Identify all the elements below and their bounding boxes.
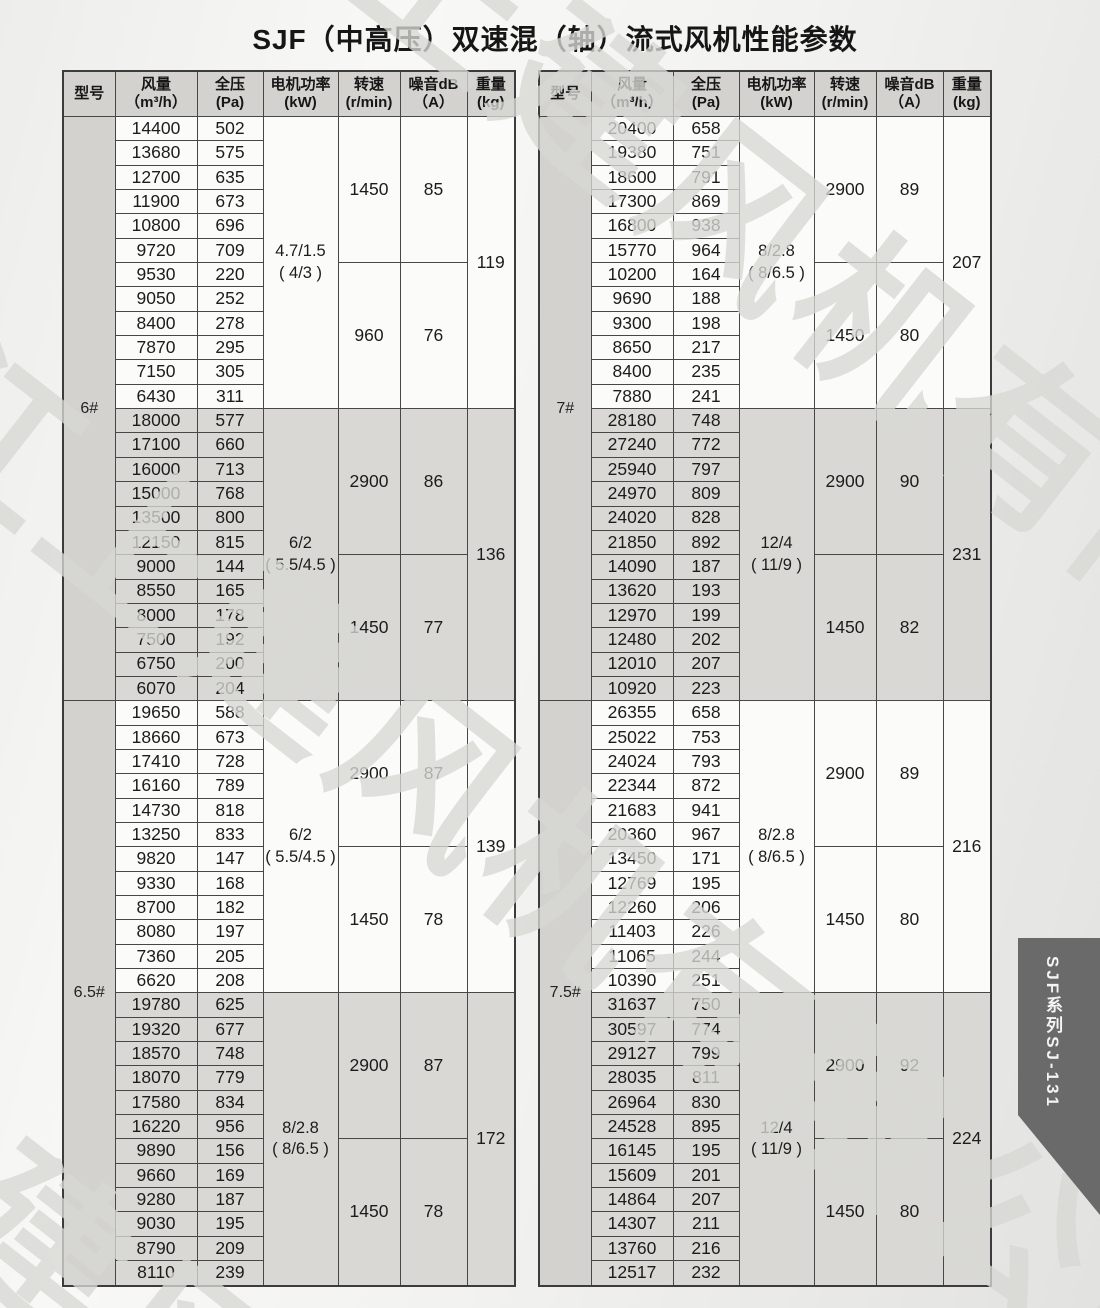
speed-cell: 2900 [814, 117, 876, 263]
flow-cell: 8650 [591, 336, 673, 360]
pressure-cell: 295 [197, 336, 263, 360]
pressure-cell: 169 [197, 1163, 263, 1187]
weight-cell: 172 [467, 993, 515, 1286]
flow-cell: 9050 [115, 287, 197, 311]
pressure-cell: 220 [197, 263, 263, 287]
pressure-cell: 188 [673, 287, 739, 311]
pressure-cell: 748 [197, 1042, 263, 1066]
flow-cell: 31637 [591, 993, 673, 1017]
pressure-cell: 207 [673, 1188, 739, 1212]
flow-cell: 19780 [115, 993, 197, 1017]
pressure-cell: 800 [197, 506, 263, 530]
flow-cell: 9660 [115, 1163, 197, 1187]
pressure-cell: 207 [673, 652, 739, 676]
pressure-cell: 198 [673, 311, 739, 335]
col-header-weight: 重量(kg) [943, 71, 991, 117]
flow-cell: 10920 [591, 676, 673, 700]
noise-cell: 89 [876, 117, 943, 263]
flow-cell: 30597 [591, 1017, 673, 1041]
col-header-label: 噪音dB [401, 76, 467, 94]
pressure-cell: 223 [673, 676, 739, 700]
pressure-cell: 193 [673, 579, 739, 603]
col-header-label: 噪音dB [877, 76, 943, 94]
flow-cell: 11900 [115, 190, 197, 214]
flow-cell: 9820 [115, 847, 197, 871]
power-cell: 6/2( 5.5/4.5 ) [263, 409, 338, 701]
pressure-cell: 577 [197, 409, 263, 433]
pressure-cell: 305 [197, 360, 263, 384]
flow-cell: 13250 [115, 822, 197, 846]
weight-cell: 224 [943, 993, 991, 1286]
pressure-cell: 278 [197, 311, 263, 335]
speed-cell: 1450 [338, 1139, 400, 1286]
col-header-unit: (r/min) [815, 94, 876, 112]
pressure-cell: 774 [673, 1017, 739, 1041]
flow-cell: 6070 [115, 676, 197, 700]
flow-cell: 9690 [591, 287, 673, 311]
flow-cell: 13680 [115, 141, 197, 165]
flow-cell: 13450 [591, 847, 673, 871]
power-cell: 12/4( 11/9 ) [739, 993, 814, 1286]
col-header-power: 电机功率(kW) [739, 71, 814, 117]
speed-cell: 2900 [338, 701, 400, 847]
power-cell: 6/2( 5.5/4.5 ) [263, 701, 338, 993]
pressure-cell: 156 [197, 1139, 263, 1163]
pressure-cell: 216 [673, 1236, 739, 1260]
flow-cell: 18600 [591, 165, 673, 189]
flow-cell: 24528 [591, 1115, 673, 1139]
flow-cell: 14730 [115, 798, 197, 822]
pressure-cell: 182 [197, 896, 263, 920]
pressure-cell: 833 [197, 822, 263, 846]
flow-cell: 9300 [591, 311, 673, 335]
pressure-cell: 809 [673, 482, 739, 506]
flow-cell: 8550 [115, 579, 197, 603]
noise-cell: 80 [876, 847, 943, 993]
power-value: 12/4 [740, 533, 814, 554]
pressure-cell: 588 [197, 701, 263, 725]
pressure-cell: 239 [197, 1261, 263, 1286]
pressure-cell: 144 [197, 555, 263, 579]
flow-cell: 26964 [591, 1090, 673, 1114]
pressure-cell: 799 [673, 1042, 739, 1066]
flow-cell: 11403 [591, 920, 673, 944]
noise-cell: 80 [876, 1139, 943, 1286]
noise-cell: 87 [400, 701, 467, 847]
flow-cell: 9720 [115, 238, 197, 262]
pressure-cell: 658 [673, 701, 739, 725]
flow-cell: 15000 [115, 482, 197, 506]
power-value: 8/2.8 [264, 1118, 338, 1139]
flow-cell: 25940 [591, 457, 673, 481]
flow-cell: 17410 [115, 749, 197, 773]
pressure-cell: 165 [197, 579, 263, 603]
pressure-cell: 673 [197, 190, 263, 214]
pressure-cell: 772 [673, 433, 739, 457]
col-header-unit: (kW) [740, 94, 814, 112]
col-header-flow: 风量（m³/h） [115, 71, 197, 117]
col-header-label: 重量 [468, 76, 515, 94]
flow-cell: 29127 [591, 1042, 673, 1066]
pressure-cell: 677 [197, 1017, 263, 1041]
flow-cell: 28035 [591, 1066, 673, 1090]
pressure-cell: 660 [197, 433, 263, 457]
pressure-cell: 751 [673, 141, 739, 165]
pressure-cell: 197 [197, 920, 263, 944]
pressure-cell: 226 [673, 920, 739, 944]
power-paren: ( 11/9 ) [740, 1139, 814, 1160]
pressure-cell: 232 [673, 1261, 739, 1286]
flow-cell: 17580 [115, 1090, 197, 1114]
catalog-page: SJF（中高压）双速混（轴）流式风机性能参数 型号风量（m³/h）全压(Pa)电… [0, 0, 1100, 1308]
pressure-cell: 311 [197, 384, 263, 408]
pressure-cell: 938 [673, 214, 739, 238]
pressure-cell: 195 [197, 1212, 263, 1236]
flow-cell: 13500 [115, 506, 197, 530]
flow-cell: 15770 [591, 238, 673, 262]
power-paren: ( 5.5/4.5 ) [264, 847, 338, 868]
weight-cell: 119 [467, 117, 515, 409]
speed-cell: 2900 [338, 993, 400, 1139]
noise-cell: 82 [876, 555, 943, 701]
noise-cell: 76 [400, 263, 467, 409]
col-header-label: 风量 [592, 76, 673, 94]
col-header-pressure: 全压(Pa) [197, 71, 263, 117]
model-cell: 7# [539, 117, 591, 701]
weight-cell: 231 [943, 409, 991, 701]
col-header-unit: (r/min) [339, 94, 400, 112]
pressure-cell: 202 [673, 628, 739, 652]
flow-cell: 7880 [591, 384, 673, 408]
flow-cell: 9530 [115, 263, 197, 287]
speed-cell: 1450 [338, 847, 400, 993]
pressure-cell: 211 [673, 1212, 739, 1236]
flow-cell: 19380 [591, 141, 673, 165]
flow-cell: 6750 [115, 652, 197, 676]
pressure-cell: 750 [673, 993, 739, 1017]
flow-cell: 8700 [115, 896, 197, 920]
speed-cell: 2900 [814, 409, 876, 555]
flow-cell: 25022 [591, 725, 673, 749]
pressure-cell: 192 [197, 628, 263, 652]
power-cell: 8/2.8( 8/6.5 ) [739, 701, 814, 993]
pressure-cell: 241 [673, 384, 739, 408]
col-header-power: 电机功率(kW) [263, 71, 338, 117]
flow-cell: 8400 [115, 311, 197, 335]
flow-cell: 16160 [115, 774, 197, 798]
pressure-cell: 195 [673, 1139, 739, 1163]
pressure-cell: 815 [197, 530, 263, 554]
col-header-unit: (Pa) [198, 94, 263, 112]
model-cell: 6# [63, 117, 115, 701]
flow-cell: 19650 [115, 701, 197, 725]
power-cell: 12/4( 11/9 ) [739, 409, 814, 701]
col-header-unit: （A） [877, 94, 943, 112]
pressure-cell: 195 [673, 871, 739, 895]
flow-cell: 16000 [115, 457, 197, 481]
pressure-cell: 830 [673, 1090, 739, 1114]
pressure-cell: 178 [197, 603, 263, 627]
power-paren: ( 5.5/4.5 ) [264, 555, 338, 576]
flow-cell: 12517 [591, 1261, 673, 1286]
flow-cell: 14307 [591, 1212, 673, 1236]
power-value: 8/2.8 [740, 241, 814, 262]
col-header-label: 型号 [64, 85, 115, 103]
noise-cell: 78 [400, 1139, 467, 1286]
flow-cell: 20360 [591, 822, 673, 846]
pressure-cell: 797 [673, 457, 739, 481]
flow-cell: 12480 [591, 628, 673, 652]
pressure-cell: 252 [197, 287, 263, 311]
pressure-cell: 967 [673, 822, 739, 846]
pressure-cell: 201 [673, 1163, 739, 1187]
power-paren: ( 11/9 ) [740, 555, 814, 576]
weight-cell: 136 [467, 409, 515, 701]
pressure-cell: 709 [197, 238, 263, 262]
pressure-cell: 941 [673, 798, 739, 822]
pressure-cell: 204 [197, 676, 263, 700]
noise-cell: 77 [400, 555, 467, 701]
speed-cell: 2900 [338, 409, 400, 555]
flow-cell: 6620 [115, 969, 197, 993]
speed-cell: 1450 [814, 847, 876, 993]
speed-cell: 1450 [338, 117, 400, 263]
power-cell: 4.7/1.5( 4/3 ) [263, 117, 338, 409]
col-header-speed: 转速(r/min) [338, 71, 400, 117]
flow-cell: 14400 [115, 117, 197, 141]
weight-cell: 139 [467, 701, 515, 993]
flow-cell: 11065 [591, 944, 673, 968]
flow-cell: 18570 [115, 1042, 197, 1066]
col-header-model: 型号 [539, 71, 591, 117]
flow-cell: 10200 [591, 263, 673, 287]
speed-cell: 2900 [814, 701, 876, 847]
flow-cell: 8110 [115, 1261, 197, 1286]
flow-cell: 9030 [115, 1212, 197, 1236]
speed-cell: 2900 [814, 993, 876, 1139]
col-header-unit: （A） [401, 94, 467, 112]
pressure-cell: 748 [673, 409, 739, 433]
pressure-cell: 199 [673, 603, 739, 627]
flow-cell: 18000 [115, 409, 197, 433]
flow-cell: 24020 [591, 506, 673, 530]
pressure-cell: 206 [673, 896, 739, 920]
flow-cell: 10800 [115, 214, 197, 238]
flow-cell: 16220 [115, 1115, 197, 1139]
pressure-cell: 171 [673, 847, 739, 871]
flow-cell: 22344 [591, 774, 673, 798]
col-header-model: 型号 [63, 71, 115, 117]
flow-cell: 7360 [115, 944, 197, 968]
flow-cell: 9280 [115, 1188, 197, 1212]
pressure-cell: 635 [197, 165, 263, 189]
flow-cell: 18070 [115, 1066, 197, 1090]
noise-cell: 78 [400, 847, 467, 993]
pressure-cell: 779 [197, 1066, 263, 1090]
pressure-cell: 793 [673, 749, 739, 773]
speed-cell: 1450 [338, 555, 400, 701]
flow-cell: 8400 [591, 360, 673, 384]
col-header-weight: 重量(kg) [467, 71, 515, 117]
power-value: 6/2 [264, 825, 338, 846]
flow-cell: 19320 [115, 1017, 197, 1041]
flow-cell: 12010 [591, 652, 673, 676]
flow-cell: 21850 [591, 530, 673, 554]
flow-cell: 9890 [115, 1139, 197, 1163]
flow-cell: 14090 [591, 555, 673, 579]
performance-table-left: 型号风量（m³/h）全压(Pa)电机功率(kW)转速(r/min)噪音dB（A）… [62, 70, 516, 1287]
flow-cell: 8790 [115, 1236, 197, 1260]
bookmark-label: SJF系列SJ-131 [1040, 956, 1065, 1109]
noise-cell: 86 [400, 409, 467, 555]
pressure-cell: 673 [197, 725, 263, 749]
flow-cell: 10390 [591, 969, 673, 993]
pressure-cell: 789 [197, 774, 263, 798]
power-paren: ( 8/6.5 ) [264, 1139, 338, 1160]
pressure-cell: 818 [197, 798, 263, 822]
noise-cell: 90 [876, 409, 943, 555]
series-bookmark-tab: SJF系列SJ-131 [1010, 930, 1100, 1260]
flow-cell: 12970 [591, 603, 673, 627]
pressure-cell: 164 [673, 263, 739, 287]
weight-cell: 216 [943, 701, 991, 993]
flow-cell: 15609 [591, 1163, 673, 1187]
flow-cell: 9000 [115, 555, 197, 579]
pressure-cell: 828 [673, 506, 739, 530]
flow-cell: 13620 [591, 579, 673, 603]
col-header-unit: (Pa) [674, 94, 739, 112]
pressure-cell: 658 [673, 117, 739, 141]
flow-cell: 21683 [591, 798, 673, 822]
pressure-cell: 895 [673, 1115, 739, 1139]
power-cell: 8/2.8( 8/6.5 ) [739, 117, 814, 409]
pressure-cell: 869 [673, 190, 739, 214]
flow-cell: 28180 [591, 409, 673, 433]
model-cell: 7.5# [539, 701, 591, 1286]
pressure-cell: 872 [673, 774, 739, 798]
col-header-label: 转速 [339, 76, 400, 94]
pressure-cell: 147 [197, 847, 263, 871]
flow-cell: 24024 [591, 749, 673, 773]
series-name: SJF系列 [1043, 956, 1062, 1036]
col-header-label: 全压 [198, 76, 263, 94]
col-header-label: 电机功率 [264, 76, 338, 94]
pressure-cell: 713 [197, 457, 263, 481]
pressure-cell: 575 [197, 141, 263, 165]
pressure-cell: 834 [197, 1090, 263, 1114]
series-code: SJ-131 [1043, 1036, 1062, 1109]
flow-cell: 7870 [115, 336, 197, 360]
noise-cell: 80 [876, 263, 943, 409]
col-header-label: 转速 [815, 76, 876, 94]
flow-cell: 9330 [115, 871, 197, 895]
flow-cell: 7500 [115, 628, 197, 652]
performance-table-right: 型号风量（m³/h）全压(Pa)电机功率(kW)转速(r/min)噪音dB（A）… [538, 70, 992, 1287]
pressure-cell: 209 [197, 1236, 263, 1260]
pressure-cell: 964 [673, 238, 739, 262]
pressure-cell: 251 [673, 969, 739, 993]
flow-cell: 6430 [115, 384, 197, 408]
flow-cell: 7150 [115, 360, 197, 384]
flow-cell: 12150 [115, 530, 197, 554]
col-header-noise: 噪音dB（A） [876, 71, 943, 117]
pressure-cell: 892 [673, 530, 739, 554]
col-header-noise: 噪音dB（A） [400, 71, 467, 117]
col-header-label: 风量 [116, 76, 197, 94]
power-value: 8/2.8 [740, 825, 814, 846]
flow-cell: 16145 [591, 1139, 673, 1163]
power-value: 12/4 [740, 1118, 814, 1139]
col-header-unit: （m³/h） [116, 94, 197, 112]
flow-cell: 17300 [591, 190, 673, 214]
pressure-cell: 205 [197, 944, 263, 968]
col-header-unit: (kW) [264, 94, 338, 112]
col-header-label: 重量 [944, 76, 991, 94]
power-paren: ( 8/6.5 ) [740, 847, 814, 868]
pressure-cell: 956 [197, 1115, 263, 1139]
pressure-cell: 235 [673, 360, 739, 384]
pressure-cell: 200 [197, 652, 263, 676]
pressure-cell: 168 [197, 871, 263, 895]
flow-cell: 17100 [115, 433, 197, 457]
col-header-label: 电机功率 [740, 76, 814, 94]
flow-cell: 12700 [115, 165, 197, 189]
power-value: 6/2 [264, 533, 338, 554]
pressure-cell: 187 [197, 1188, 263, 1212]
power-paren: ( 8/6.5 ) [740, 263, 814, 284]
flow-cell: 14864 [591, 1188, 673, 1212]
page-title: SJF（中高压）双速混（轴）流式风机性能参数 [60, 18, 1050, 58]
flow-cell: 12769 [591, 871, 673, 895]
speed-cell: 1450 [814, 555, 876, 701]
flow-cell: 8000 [115, 603, 197, 627]
col-header-unit: (kg) [944, 94, 991, 112]
col-header-pressure: 全压(Pa) [673, 71, 739, 117]
pressure-cell: 753 [673, 725, 739, 749]
flow-cell: 26355 [591, 701, 673, 725]
power-value: 4.7/1.5 [264, 241, 338, 262]
col-header-unit: （m³/h） [592, 94, 673, 112]
flow-cell: 13760 [591, 1236, 673, 1260]
speed-cell: 960 [338, 263, 400, 409]
noise-cell: 89 [876, 701, 943, 847]
flow-cell: 27240 [591, 433, 673, 457]
pressure-cell: 696 [197, 214, 263, 238]
pressure-cell: 217 [673, 336, 739, 360]
weight-cell: 207 [943, 117, 991, 409]
pressure-cell: 244 [673, 944, 739, 968]
noise-cell: 87 [400, 993, 467, 1139]
pressure-cell: 502 [197, 117, 263, 141]
speed-cell: 1450 [814, 1139, 876, 1286]
pressure-cell: 187 [673, 555, 739, 579]
pressure-cell: 625 [197, 993, 263, 1017]
power-cell: 8/2.8( 8/6.5 ) [263, 993, 338, 1286]
model-cell: 6.5# [63, 701, 115, 1286]
flow-cell: 8080 [115, 920, 197, 944]
pressure-cell: 791 [673, 165, 739, 189]
flow-cell: 20400 [591, 117, 673, 141]
col-header-unit: (kg) [468, 94, 515, 112]
pressure-cell: 768 [197, 482, 263, 506]
flow-cell: 24970 [591, 482, 673, 506]
flow-cell: 18660 [115, 725, 197, 749]
flow-cell: 16800 [591, 214, 673, 238]
col-header-speed: 转速(r/min) [814, 71, 876, 117]
col-header-flow: 风量（m³/h） [591, 71, 673, 117]
col-header-label: 型号 [540, 85, 591, 103]
flow-cell: 12260 [591, 896, 673, 920]
